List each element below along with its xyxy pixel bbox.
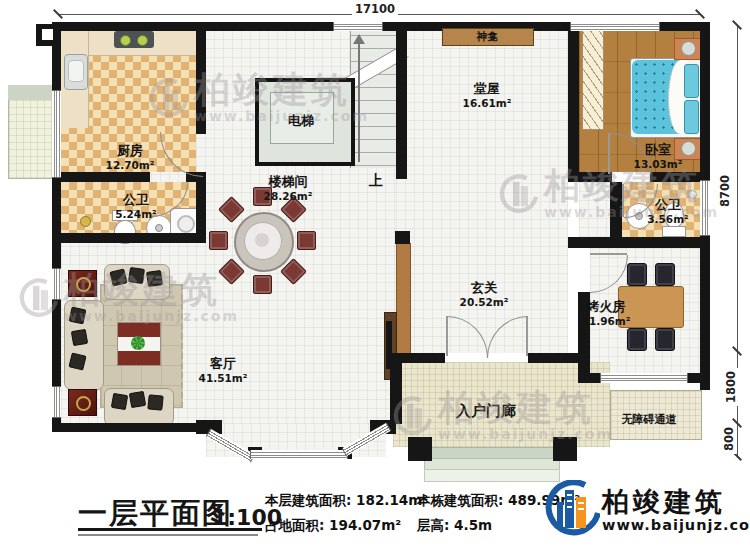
wall-left <box>52 22 61 432</box>
stove-burner-2 <box>137 35 148 46</box>
kitchen-sink-basin <box>68 60 84 82</box>
wall-tangwu-bedroom <box>568 22 579 182</box>
fireroom-chair <box>655 263 675 286</box>
wall-foyer-porch-b <box>528 353 580 363</box>
dining-chair <box>209 231 228 250</box>
tv-cabinet <box>396 243 411 355</box>
room-label-foyer: 玄关20.52m² <box>460 281 509 308</box>
bath1-lamp <box>80 216 91 227</box>
coffee-table-plant <box>131 336 145 350</box>
fireroom-chair <box>655 328 675 351</box>
stat-floor-area: 本层建筑面积: 182.14m² <box>265 492 428 510</box>
stair-arrow-icon <box>353 34 365 44</box>
room-label-bedroom: 卧室13.03m² <box>634 143 683 170</box>
sofa-cushion <box>111 393 128 410</box>
window-right-bath2 <box>700 180 710 236</box>
wall-bedroom-bottom-a <box>568 172 612 182</box>
brand-name: 柏竣建筑 <box>602 484 726 520</box>
sofa-cushion <box>146 270 163 287</box>
stove-burner-1 <box>120 35 131 46</box>
room-label-living: 客厅41.51m² <box>199 357 248 384</box>
floor-corridor <box>579 182 610 242</box>
tv-wall-stub <box>395 231 410 244</box>
title-underline-thin <box>78 534 258 536</box>
stair-up-label: 上 <box>369 172 383 188</box>
fireroom-chair <box>627 328 647 351</box>
deck-band <box>8 85 58 100</box>
title-underline-thick <box>78 528 262 531</box>
fireroom-chair <box>627 263 647 286</box>
room-label-elevator: 电梯 <box>288 114 314 129</box>
room-label-fireroom: 烤火房11.96m² <box>582 300 631 327</box>
porch-step-3 <box>424 469 560 482</box>
wall-kitchen-bath-a <box>52 172 150 182</box>
sofa-cushion <box>71 329 88 346</box>
window-fireroom-bottom <box>600 373 688 383</box>
room-label-ramp: 无障碍通道 <box>622 414 677 427</box>
wardrobe <box>582 30 604 130</box>
chimney-flue <box>42 29 53 40</box>
porch-column-left <box>408 437 432 461</box>
room-label-stairhall: 楼梯间28.26m² <box>264 175 313 202</box>
room-label-bath1: 公卫5.24m² <box>115 193 156 220</box>
bath2-toilet-tank <box>662 226 686 237</box>
brand-url: www.baijunjz.com <box>602 517 750 533</box>
room-label-shrine: 神龛 <box>477 30 498 42</box>
dining-chair <box>253 275 272 294</box>
room-label-kitchen: 厨房12.70m² <box>106 144 155 171</box>
dining-chair <box>297 231 316 250</box>
window-left-living-2 <box>52 386 61 418</box>
wall-foyer-porch-vert <box>390 360 402 424</box>
nightstand-lamp-2 <box>681 141 696 156</box>
wall-kitchen-hall-a <box>196 22 206 134</box>
dining-table-hub <box>255 233 269 247</box>
window-left-living-1 <box>52 268 61 300</box>
side-table-ornament-1 <box>76 277 91 292</box>
room-label-tangwu: 堂屋16.61m² <box>463 82 512 109</box>
room-label-bath2: 公卫3.56m² <box>647 198 688 225</box>
wall-tangwu-left <box>396 22 407 179</box>
porch-column-right <box>553 437 577 461</box>
dimension-right-label-800: 800 <box>722 424 736 454</box>
window-bay-center <box>250 450 348 459</box>
dimension-top-label: 17100 <box>352 2 398 16</box>
side-table-ornament-2 <box>76 396 91 411</box>
brand-logo-icon <box>544 480 600 538</box>
washing-machine-drum <box>177 215 195 233</box>
window-top-stairs <box>333 22 383 31</box>
stat-footprint-area: 占地面积: 194.07m² <box>265 517 401 535</box>
window-top-bedroom <box>570 22 660 31</box>
floor-plan-canvas: 厨房12.70m² 公卫5.24m² 电梯 楼梯间28.26m² 堂屋16.61… <box>0 0 750 546</box>
bath2-floor-drain <box>688 190 697 199</box>
sofa-cushion <box>128 267 145 284</box>
dimension-right-label-1800: 1800 <box>724 368 738 406</box>
sofa-cushion <box>147 394 163 410</box>
sofa-cushion <box>129 391 146 408</box>
wall-bath1-bottom <box>52 233 206 243</box>
stair-direction-line <box>358 44 360 162</box>
window-left-deck <box>52 90 61 178</box>
bed-pillow-1 <box>684 64 699 98</box>
room-label-porch: 入户门廊 <box>456 403 516 420</box>
wall-living-bottom <box>52 423 208 432</box>
sofa-cushion <box>69 307 87 325</box>
stat-floor-height: 层高: 4.5m <box>417 517 492 535</box>
bed-pillow-2 <box>684 100 699 134</box>
wall-mid-horizontal <box>568 237 710 248</box>
dimension-right-label-8700: 8700 <box>718 172 732 210</box>
nightstand-lamp-1 <box>681 41 696 56</box>
bath1-sink-drain <box>155 224 163 232</box>
